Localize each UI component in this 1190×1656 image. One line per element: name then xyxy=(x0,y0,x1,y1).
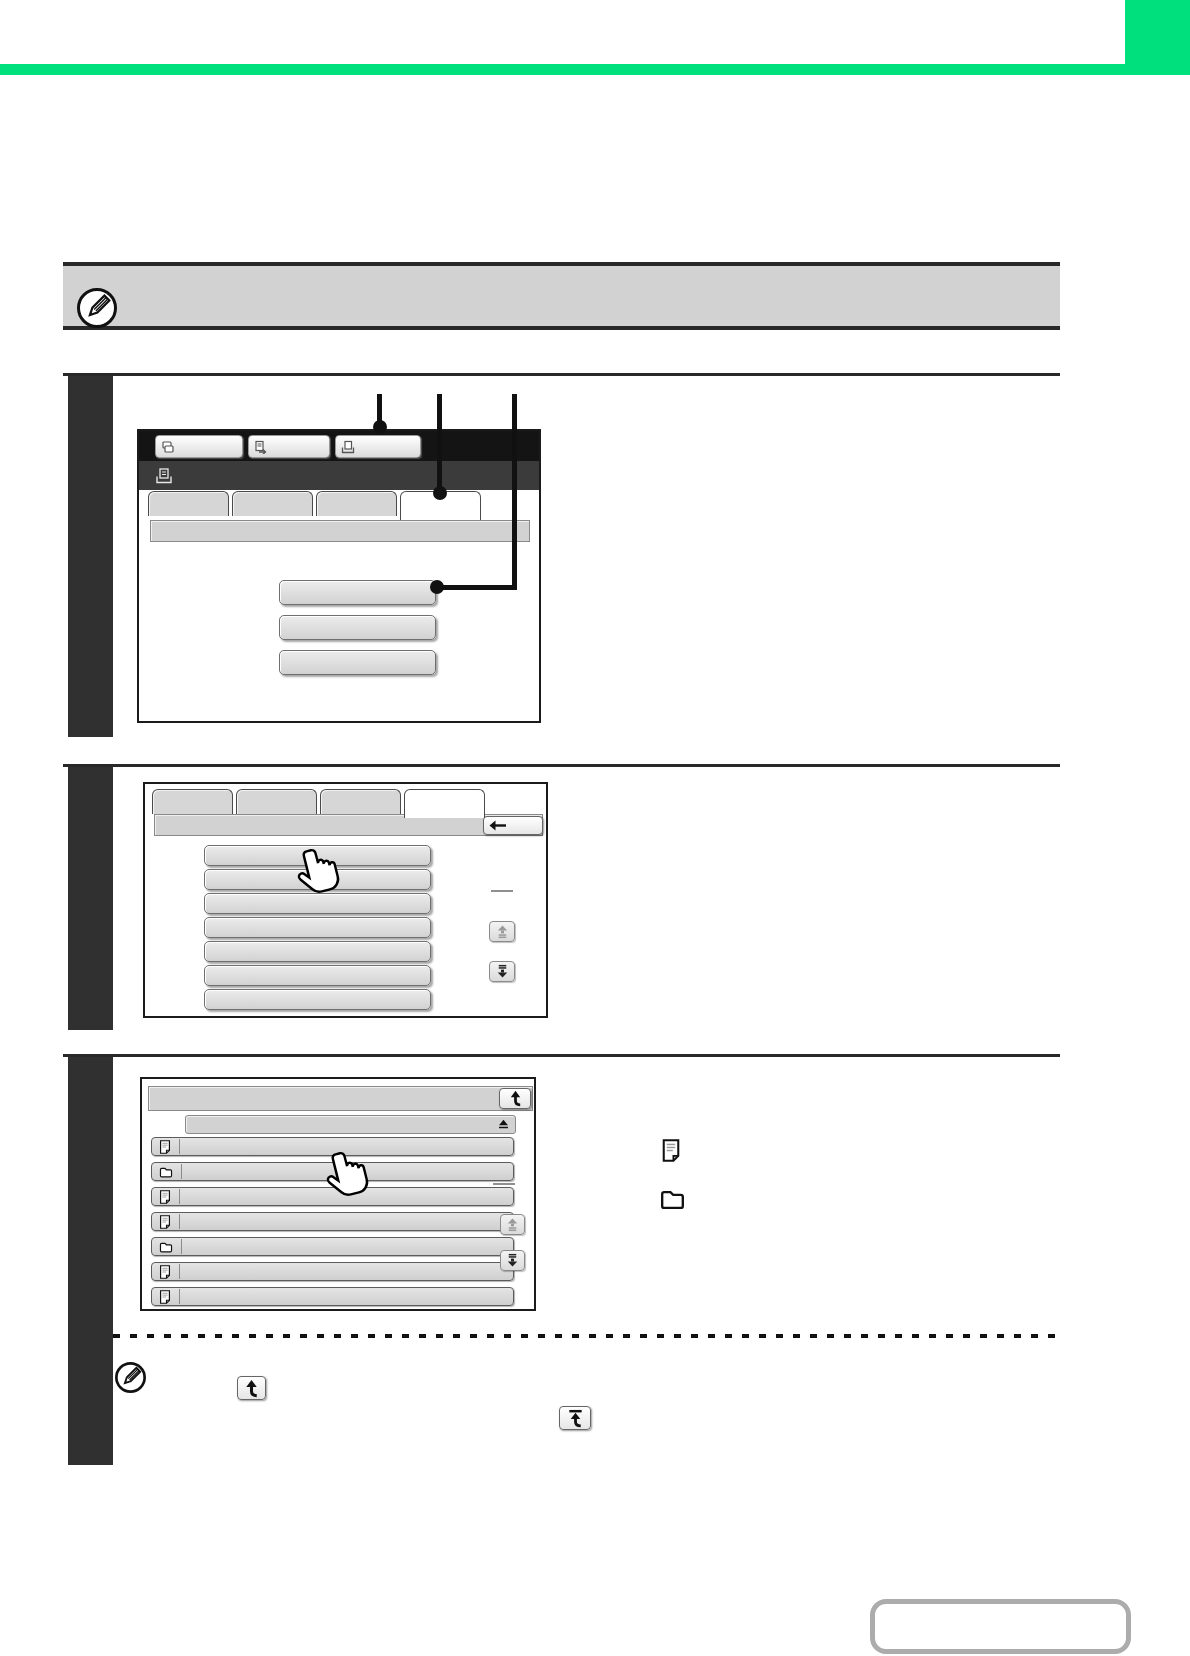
file-list-row[interactable] xyxy=(151,1237,514,1256)
step2-rule xyxy=(63,764,1060,767)
pencil-note-icon xyxy=(114,1361,147,1394)
menu-button[interactable] xyxy=(279,650,436,675)
scroll-up-icon xyxy=(505,1217,520,1232)
copy-mode-icon xyxy=(161,440,175,454)
list-button[interactable] xyxy=(204,965,431,986)
sort-asc-icon xyxy=(497,1118,510,1131)
screen-tab[interactable] xyxy=(404,789,485,818)
file-icon xyxy=(159,1215,171,1229)
scroll-down-button[interactable] xyxy=(489,961,515,982)
doc-filing-mode-icon xyxy=(341,440,355,454)
scroll-down-button[interactable] xyxy=(500,1250,525,1271)
doc-filing-icon xyxy=(155,467,173,485)
scroll-down-icon xyxy=(495,964,510,979)
scroll-up-button[interactable] xyxy=(489,921,515,942)
folder-up-root-button-inline xyxy=(559,1406,591,1430)
step3-header-bar xyxy=(148,1086,533,1111)
sort-header-bar[interactable] xyxy=(185,1115,516,1134)
screen-tab[interactable] xyxy=(236,789,317,814)
screen-title-bar xyxy=(139,461,539,490)
callout-dot-1 xyxy=(373,420,387,434)
screen-tab[interactable] xyxy=(232,491,313,516)
folder-icon xyxy=(159,1166,173,1178)
folder-up-button-inline xyxy=(237,1376,266,1400)
screen-tab[interactable] xyxy=(148,491,229,516)
manual-page xyxy=(0,0,1190,1656)
step1-menu xyxy=(279,580,436,675)
step3-screenshot xyxy=(140,1077,536,1311)
step1-rule xyxy=(63,373,1060,376)
page-corner-accent xyxy=(1125,0,1190,75)
page-indicator-dash xyxy=(491,890,513,892)
file-icon xyxy=(159,1190,171,1204)
file-icon xyxy=(159,1290,171,1304)
legend-folder-icon xyxy=(659,1188,686,1210)
legend-file-icon xyxy=(661,1139,681,1162)
step3-rule xyxy=(63,1054,1060,1057)
callout-dot-3 xyxy=(430,580,444,594)
row-divider xyxy=(179,1139,180,1154)
dotted-separator xyxy=(113,1334,1060,1338)
footer-nav-box[interactable] xyxy=(870,1599,1131,1654)
mode-select-toolbar xyxy=(155,435,421,458)
callout-line-3-vertical xyxy=(512,394,517,590)
folder-icon xyxy=(159,1241,173,1253)
step2-number-bar xyxy=(68,767,113,1030)
file-list-row[interactable] xyxy=(151,1287,514,1306)
step1-subheader-bar xyxy=(150,520,530,542)
list-button[interactable] xyxy=(204,941,431,962)
screen-tab[interactable] xyxy=(320,789,401,814)
folder-up-icon xyxy=(242,1379,261,1398)
scroll-up-button[interactable] xyxy=(500,1214,525,1235)
callout-line-2 xyxy=(437,394,442,489)
step1-number-bar xyxy=(68,376,113,737)
pencil-note-icon xyxy=(76,287,118,329)
system-bar xyxy=(139,431,539,461)
copy-mode-button[interactable] xyxy=(155,435,243,458)
file-icon xyxy=(159,1265,171,1279)
row-divider xyxy=(179,1264,180,1279)
callout-dot-2 xyxy=(433,486,447,500)
image-send-mode-icon xyxy=(254,440,268,454)
step3-number-bar xyxy=(68,1057,113,1465)
step1-tabs xyxy=(148,491,481,520)
folder-up-root-icon xyxy=(566,1409,585,1428)
callout-line-3-horizontal xyxy=(441,585,517,590)
image-send-mode-button[interactable] xyxy=(248,435,330,458)
screen-tab[interactable] xyxy=(152,789,233,814)
file-list-row[interactable] xyxy=(151,1212,514,1231)
step1-screenshot xyxy=(137,429,541,723)
row-divider xyxy=(179,1189,180,1204)
folder-up-button[interactable] xyxy=(499,1088,531,1109)
row-divider xyxy=(181,1164,182,1179)
step2-screenshot xyxy=(143,782,548,1018)
file-icon xyxy=(159,1140,171,1154)
note-box xyxy=(63,262,1060,330)
file-list-row[interactable] xyxy=(151,1262,514,1281)
row-divider xyxy=(179,1214,180,1229)
menu-button[interactable] xyxy=(279,615,436,640)
list-button[interactable] xyxy=(204,989,431,1010)
back-button[interactable] xyxy=(483,816,543,835)
header-rule xyxy=(0,64,1190,75)
row-divider xyxy=(181,1239,182,1254)
scroll-up-icon xyxy=(495,924,510,939)
list-button[interactable] xyxy=(204,917,431,938)
screen-tab[interactable] xyxy=(316,491,397,516)
doc-filing-mode-button[interactable] xyxy=(335,435,421,458)
folder-up-icon xyxy=(507,1090,524,1107)
scroll-down-icon xyxy=(505,1253,520,1268)
menu-button[interactable] xyxy=(279,580,436,605)
row-divider xyxy=(179,1289,180,1304)
page-indicator-dash xyxy=(493,1183,515,1185)
back-arrow-icon xyxy=(489,820,507,831)
